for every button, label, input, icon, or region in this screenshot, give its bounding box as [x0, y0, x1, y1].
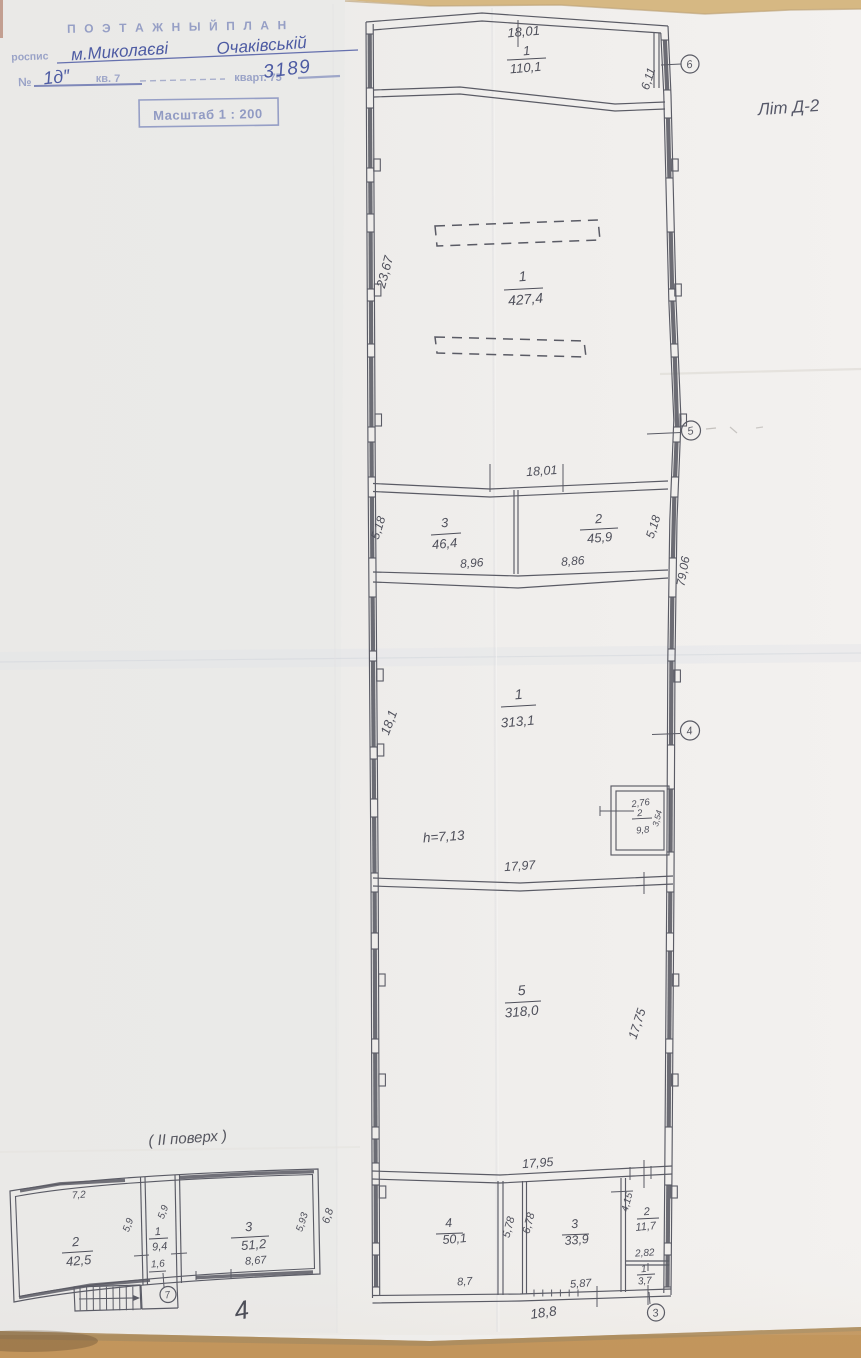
- svg-text:1: 1: [518, 268, 527, 285]
- svg-text:18,01: 18,01: [507, 23, 541, 41]
- svg-text:318,0: 318,0: [504, 1003, 539, 1021]
- svg-text:2: 2: [642, 1206, 650, 1219]
- svg-text:9,4: 9,4: [152, 1240, 168, 1253]
- svg-text:2,82: 2,82: [634, 1247, 656, 1259]
- svg-text:11,7: 11,7: [635, 1220, 657, 1234]
- svg-text:кв. 7: кв. 7: [96, 73, 121, 85]
- svg-text:1: 1: [522, 43, 531, 59]
- svg-text:8,96: 8,96: [460, 555, 485, 571]
- svg-text:Масштаб 1 : 200: Масштаб 1 : 200: [153, 106, 263, 123]
- svg-text:42,5: 42,5: [65, 1252, 92, 1269]
- svg-text:8,86: 8,86: [561, 553, 586, 569]
- svg-text:1: 1: [641, 1264, 648, 1275]
- svg-text:5: 5: [517, 982, 526, 999]
- svg-text:1: 1: [514, 686, 523, 703]
- svg-text:3,7: 3,7: [638, 1276, 653, 1288]
- svg-text:110,1: 110,1: [509, 59, 542, 77]
- svg-text:№: №: [18, 75, 32, 89]
- svg-text:5,87: 5,87: [570, 1277, 593, 1291]
- svg-text:427,4: 427,4: [507, 290, 544, 309]
- svg-text:8,7: 8,7: [457, 1275, 474, 1288]
- svg-text:18,01: 18,01: [526, 463, 558, 479]
- svg-text:9,8: 9,8: [636, 824, 651, 836]
- svg-text:4: 4: [445, 1216, 453, 1231]
- svg-text:1: 1: [154, 1226, 161, 1238]
- svg-text:46,4: 46,4: [431, 535, 458, 552]
- svg-text:3: 3: [571, 1217, 579, 1232]
- svg-text:1,6: 1,6: [151, 1259, 166, 1271]
- svg-text:роспис: роспис: [11, 50, 49, 63]
- svg-text:h=7,13: h=7,13: [422, 828, 465, 846]
- svg-text:17,95: 17,95: [522, 1155, 554, 1171]
- svg-text:7,2: 7,2: [72, 1190, 87, 1202]
- svg-text:313,1: 313,1: [500, 713, 535, 731]
- svg-text:45,9: 45,9: [586, 529, 613, 546]
- svg-text:17,97: 17,97: [504, 858, 537, 874]
- svg-text:51,2: 51,2: [240, 1236, 267, 1253]
- svg-text:8,67: 8,67: [245, 1254, 268, 1268]
- svg-text:50,1: 50,1: [442, 1231, 467, 1247]
- svg-text:33,9: 33,9: [564, 1232, 590, 1248]
